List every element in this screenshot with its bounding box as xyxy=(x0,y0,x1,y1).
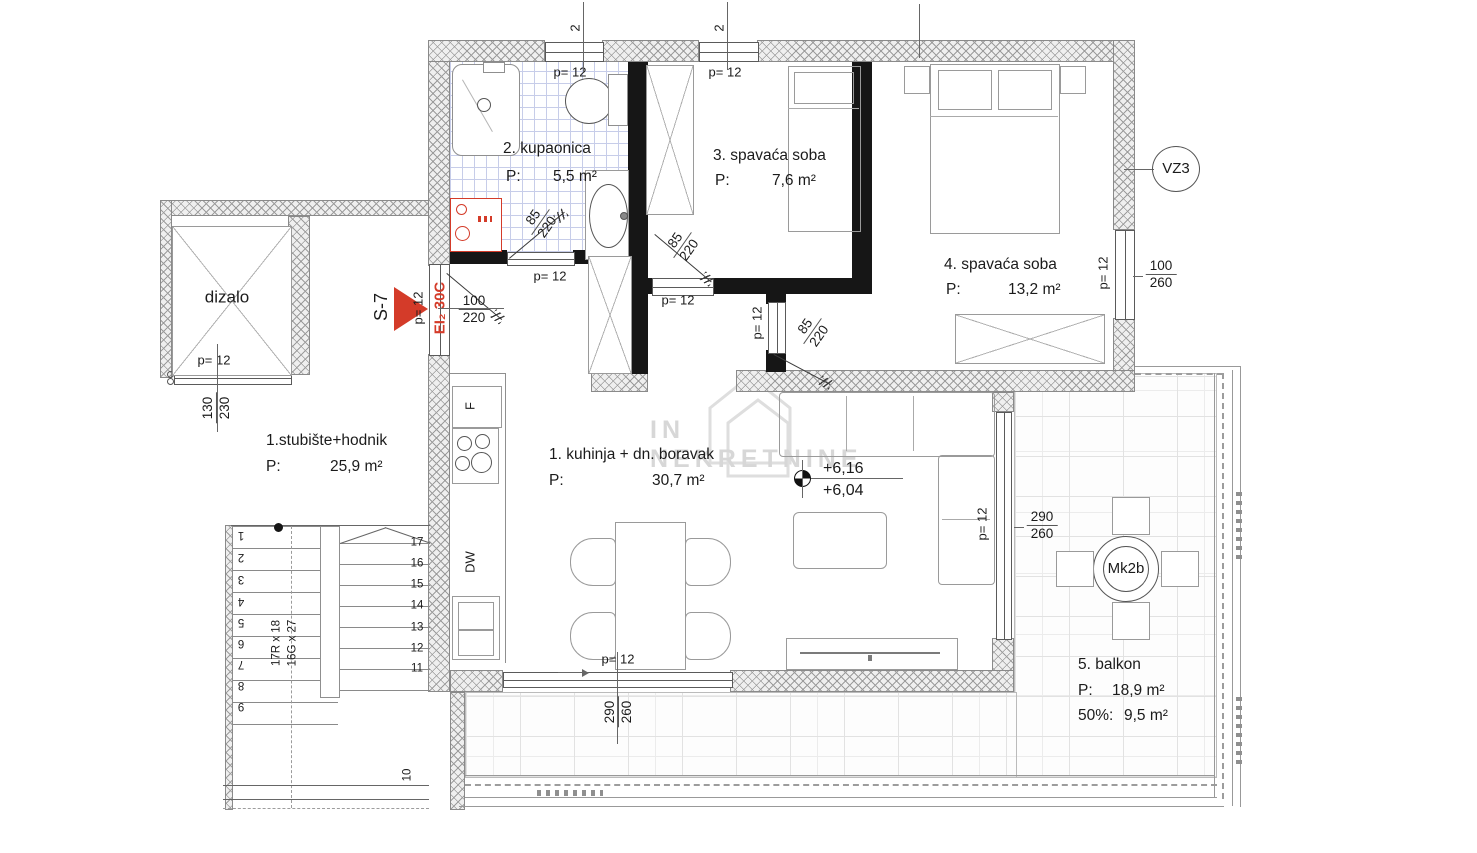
entry-p-label: p= 12 xyxy=(412,292,425,325)
bed4-door-frame xyxy=(768,302,786,354)
stove-burner-3 xyxy=(455,456,470,471)
bed4-area: 13,2 m² xyxy=(1008,281,1061,298)
bath-name: 2. kupaonica xyxy=(503,140,591,157)
bath-window xyxy=(545,42,604,62)
bed4-window-dim: 100 260 xyxy=(1146,258,1177,290)
stairs-arrow-right xyxy=(385,527,431,544)
top-wall-tick xyxy=(919,4,920,58)
bed3-door-p: p= 12 xyxy=(662,294,695,307)
stair-num: 4 xyxy=(238,594,244,606)
toilet-bowl xyxy=(565,78,613,124)
bed4-nightstand-right xyxy=(1060,66,1086,94)
dining-table xyxy=(615,522,686,670)
balcony-chair-top xyxy=(1112,497,1150,535)
washing-machine-door xyxy=(455,226,470,241)
bed4-window-dim-line xyxy=(1133,276,1143,277)
wall-top-2 xyxy=(602,40,699,62)
dining-chair xyxy=(685,538,731,586)
elevation-upper: +6,16 xyxy=(823,460,863,478)
stair-num: 8 xyxy=(238,678,244,690)
wall-balcony-left-thin xyxy=(450,692,465,810)
vent-leader-line xyxy=(1124,169,1154,170)
stairs-center-line xyxy=(291,526,292,808)
stairs-bottom-dashed xyxy=(223,808,429,809)
balcony-p: P: xyxy=(1078,682,1093,699)
bed3-pillow xyxy=(794,72,854,104)
bed3-window-num: 2 xyxy=(713,24,726,31)
bed4-window-p: p= 12 xyxy=(1097,257,1110,290)
wall-living-bottom-1 xyxy=(450,670,503,692)
fridge-label: F xyxy=(464,402,477,410)
stair-num: 3 xyxy=(238,572,244,584)
sofa-back-section xyxy=(779,392,995,457)
stairs-arrow-left xyxy=(340,527,386,544)
bed4-nightstand-left xyxy=(904,66,930,94)
bed4-name: 4. spavaća soba xyxy=(944,256,1057,273)
wall-living-bottom-2 xyxy=(730,670,1014,692)
bath-sink-faucet xyxy=(620,212,628,220)
kitchen-sink-basin-2 xyxy=(458,630,494,656)
tv-screen xyxy=(800,652,940,654)
wall-top-1 xyxy=(428,40,545,62)
stairs-start-dot xyxy=(274,523,283,532)
railing-posts-bottom xyxy=(537,790,603,796)
bed3-p: P: xyxy=(715,172,730,189)
stair-num: 14 xyxy=(411,600,424,612)
stairs-bottom-line-1 xyxy=(223,785,429,786)
bath-door-p: p= 12 xyxy=(534,270,567,283)
kitchen-counter-top xyxy=(450,373,506,374)
bed3-area: 7,6 m² xyxy=(772,172,816,189)
railing-bottom-dashed xyxy=(465,784,1217,786)
wall-right-upper xyxy=(1113,40,1135,230)
stairs-goings-note: 16G x 27 xyxy=(287,620,299,667)
stair-num: 6 xyxy=(238,636,244,648)
stair-num: 17 xyxy=(411,537,424,549)
living-name: 1. kuhinja + dn. boravak xyxy=(549,446,714,463)
dining-chair xyxy=(570,538,616,586)
bed4-door-dim: 85 220 xyxy=(790,309,834,352)
sofa-divider-1 xyxy=(846,396,847,451)
stair-num-mid: 10 xyxy=(402,769,414,782)
stairs-bottom-line-2 xyxy=(223,799,429,800)
wall-bath-south-a xyxy=(450,250,507,264)
railing-right-inner xyxy=(1214,373,1215,797)
railing-top-dashed xyxy=(1135,373,1223,375)
stair-num: 16 xyxy=(411,558,424,570)
hall-p: P: xyxy=(266,458,281,475)
washing-machine-vent xyxy=(478,216,492,222)
wall-living-right-upper xyxy=(992,392,1014,412)
stair-num: 5 xyxy=(238,615,244,627)
stair-num: 1 xyxy=(238,528,244,540)
bed4-pillow-right xyxy=(998,70,1052,110)
tv-bench xyxy=(786,638,958,670)
tv-stand xyxy=(868,655,872,661)
bed3-wardrobe xyxy=(646,65,694,215)
wall-left-edge xyxy=(160,200,172,378)
dishwasher-label: DW xyxy=(464,551,477,573)
bath-p: P: xyxy=(506,168,521,185)
entry-door-dim: 100 220 xyxy=(459,293,490,325)
washing-machine-dial xyxy=(456,204,467,215)
balcony-table-label: Mk2b xyxy=(1108,561,1145,578)
stair-num: 12 xyxy=(411,643,424,655)
stair-num: 2 xyxy=(238,550,244,562)
balcony-half-label: 50%: xyxy=(1078,707,1113,724)
bed4-window xyxy=(1115,230,1135,320)
living-area: 30,7 m² xyxy=(652,472,705,489)
hall-name: 1.stubište+hodnik xyxy=(266,432,387,449)
unit-label: S-7 xyxy=(372,293,392,321)
toilet-tank xyxy=(608,74,628,126)
railing-bottom-mid xyxy=(465,797,1217,798)
elevation-lower: +6,04 xyxy=(823,482,863,500)
elevator-door-knob-2 xyxy=(167,378,174,385)
stove-burner-4 xyxy=(471,452,492,473)
wall-top-dizalo xyxy=(160,200,450,216)
stair-num: 7 xyxy=(238,657,244,669)
hall-area: 25,9 m² xyxy=(330,458,383,475)
elevator-door-dim: 130 230 xyxy=(200,393,232,424)
bath-door-frame xyxy=(507,252,575,266)
sofa-divider-2 xyxy=(913,396,914,451)
balcony-chair-left xyxy=(1056,551,1094,587)
balcony-chair-bottom xyxy=(1112,602,1150,640)
bed4-wardrobe xyxy=(955,314,1105,364)
kitchen-counter-edge xyxy=(505,373,506,663)
coffee-table xyxy=(793,512,887,569)
stairs-stringer xyxy=(320,526,340,698)
elevator-p-label: p= 12 xyxy=(198,354,231,367)
bed4-pillow-left xyxy=(938,70,992,110)
bed3-door-dim: 85 220 xyxy=(660,223,704,266)
balcony-name: 5. balkon xyxy=(1078,656,1141,673)
bed3-window xyxy=(699,42,759,62)
stair-num: 13 xyxy=(411,622,424,634)
railing-posts-right-2 xyxy=(1236,697,1242,767)
bed3-name: 3. spavaća soba xyxy=(713,147,826,164)
wall-apartment-left-upper xyxy=(428,40,450,266)
living-p: P: xyxy=(549,472,564,489)
bath-window-tick xyxy=(583,2,584,72)
shower-head xyxy=(483,62,505,73)
bed3-bed-line xyxy=(788,108,859,109)
bed4-p: P: xyxy=(946,281,961,298)
balcony-door-east-dim: 290 260 xyxy=(1027,509,1058,541)
balcony-half-area: 9,5 m² xyxy=(1124,707,1168,724)
dining-chair xyxy=(685,612,731,660)
balcony-slider-south xyxy=(503,672,733,688)
wall-corridor-south-2 xyxy=(736,370,1135,392)
balcony-floor-bottom xyxy=(465,692,1017,778)
balcony-door-east-dim-line xyxy=(1014,527,1024,528)
balcony-door-south-p: p= 12 xyxy=(602,653,635,666)
balcony-chair-right xyxy=(1161,551,1199,587)
south-arrow-head xyxy=(582,669,589,677)
wall-top-3 xyxy=(757,40,1135,62)
bath-window-num: 2 xyxy=(569,24,582,31)
elevation-crosshair-v xyxy=(802,460,803,498)
bed3-window-tick xyxy=(727,2,728,70)
balcony-door-south-dim: 290 260 xyxy=(602,697,634,728)
balcony-area: 18,9 m² xyxy=(1112,682,1165,699)
stair-num: 9 xyxy=(238,699,244,711)
bath-area: 5,5 m² xyxy=(553,168,597,185)
balcony-slider-east xyxy=(996,412,1012,640)
hall-closet xyxy=(588,256,632,374)
railing-bottom-outer xyxy=(459,806,1224,807)
shower-drain xyxy=(477,98,491,112)
railing-posts-right-1 xyxy=(1236,492,1242,562)
bed3-window-p: p= 12 xyxy=(709,66,742,79)
bed4-bed-line xyxy=(930,116,1058,117)
elevator-label: dizalo xyxy=(205,289,249,308)
railing-right-dashed xyxy=(1222,373,1224,799)
bed4-door-p: p= 12 xyxy=(751,307,764,340)
vent-label: VZ3 xyxy=(1162,161,1190,178)
bath-window-p: p= 12 xyxy=(554,66,587,79)
stair-num: 15 xyxy=(411,579,424,591)
wall-apartment-left-lower xyxy=(428,354,450,692)
elevation-line xyxy=(811,478,903,479)
kitchen-sink-basin-1 xyxy=(458,602,494,630)
railing-right-mid xyxy=(1232,370,1233,806)
railing-top-line xyxy=(1135,366,1241,367)
stove-burner-2 xyxy=(475,434,490,449)
balcony-door-east-p: p= 12 xyxy=(976,508,989,541)
railing-bottom-inner xyxy=(465,775,1215,776)
wall-bed3-south-b xyxy=(712,278,872,294)
stair-num: 11 xyxy=(411,663,423,675)
south-arrow-line xyxy=(558,672,584,673)
stove-burner-1 xyxy=(457,436,472,451)
stairs-risers-note: 17R x 18 xyxy=(271,620,283,666)
floor-plan-canvas: IN NEKRETNINE dizalo p= 12 130 xyxy=(0,0,1477,853)
